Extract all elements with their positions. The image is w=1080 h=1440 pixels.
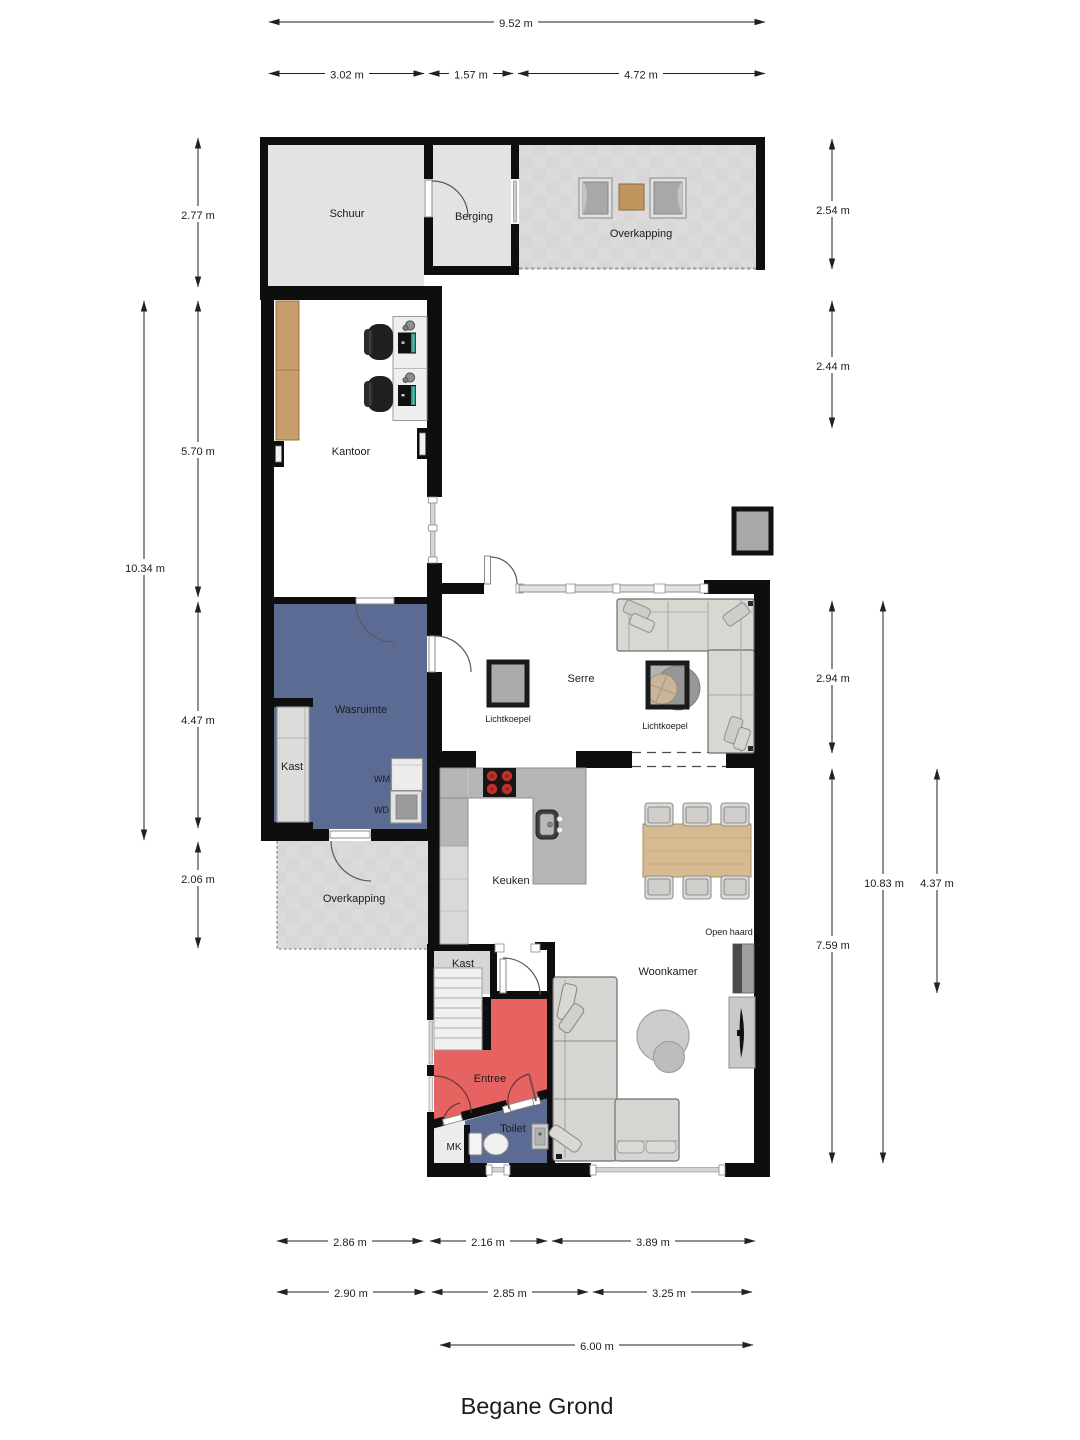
svg-text:Wasruimte: Wasruimte	[335, 704, 387, 716]
svg-text:Kantoor: Kantoor	[332, 446, 371, 458]
svg-text:Keuken: Keuken	[492, 875, 529, 887]
svg-text:Kast: Kast	[452, 958, 474, 970]
svg-text:7.59 m: 7.59 m	[816, 940, 850, 952]
svg-text:Woonkamer: Woonkamer	[638, 966, 697, 978]
svg-text:4.47 m: 4.47 m	[181, 715, 215, 727]
svg-text:10.34 m: 10.34 m	[125, 563, 165, 575]
svg-text:Schuur: Schuur	[330, 208, 365, 220]
svg-text:2.44 m: 2.44 m	[816, 361, 850, 373]
svg-text:2.06 m: 2.06 m	[181, 874, 215, 886]
svg-text:MK: MK	[447, 1142, 462, 1153]
svg-text:2.54 m: 2.54 m	[816, 205, 850, 217]
svg-text:Lichtkoepel: Lichtkoepel	[642, 721, 688, 731]
svg-text:5.70 m: 5.70 m	[181, 446, 215, 458]
svg-text:3.89 m: 3.89 m	[636, 1237, 670, 1249]
svg-text:4.72 m: 4.72 m	[624, 70, 658, 82]
svg-text:3.25 m: 3.25 m	[652, 1288, 686, 1300]
svg-text:Entree: Entree	[474, 1073, 506, 1085]
svg-text:Begane Grond: Begane Grond	[461, 1393, 614, 1419]
svg-text:Berging: Berging	[455, 211, 493, 223]
svg-text:Overkapping: Overkapping	[323, 893, 385, 905]
svg-text:2.94 m: 2.94 m	[816, 673, 850, 685]
svg-text:Serre: Serre	[568, 673, 595, 685]
svg-text:3.02 m: 3.02 m	[330, 70, 364, 82]
svg-text:1.57 m: 1.57 m	[454, 70, 488, 82]
svg-text:Open haard: Open haard	[705, 927, 753, 937]
svg-text:WM: WM	[374, 774, 390, 784]
svg-text:Toilet: Toilet	[500, 1123, 526, 1135]
svg-text:2.16 m: 2.16 m	[471, 1237, 505, 1249]
svg-text:10.83 m: 10.83 m	[864, 878, 904, 890]
svg-text:2.90 m: 2.90 m	[334, 1288, 368, 1300]
svg-text:WD: WD	[374, 805, 389, 815]
svg-text:Lichtkoepel: Lichtkoepel	[485, 714, 531, 724]
svg-text:Kast: Kast	[281, 761, 303, 773]
svg-text:2.85 m: 2.85 m	[493, 1288, 527, 1300]
svg-text:9.52 m: 9.52 m	[499, 18, 533, 30]
svg-text:2.77 m: 2.77 m	[181, 210, 215, 222]
svg-text:Overkapping: Overkapping	[610, 228, 672, 240]
svg-text:2.86 m: 2.86 m	[333, 1237, 367, 1249]
svg-text:6.00 m: 6.00 m	[580, 1341, 614, 1353]
svg-text:4.37 m: 4.37 m	[920, 878, 954, 890]
